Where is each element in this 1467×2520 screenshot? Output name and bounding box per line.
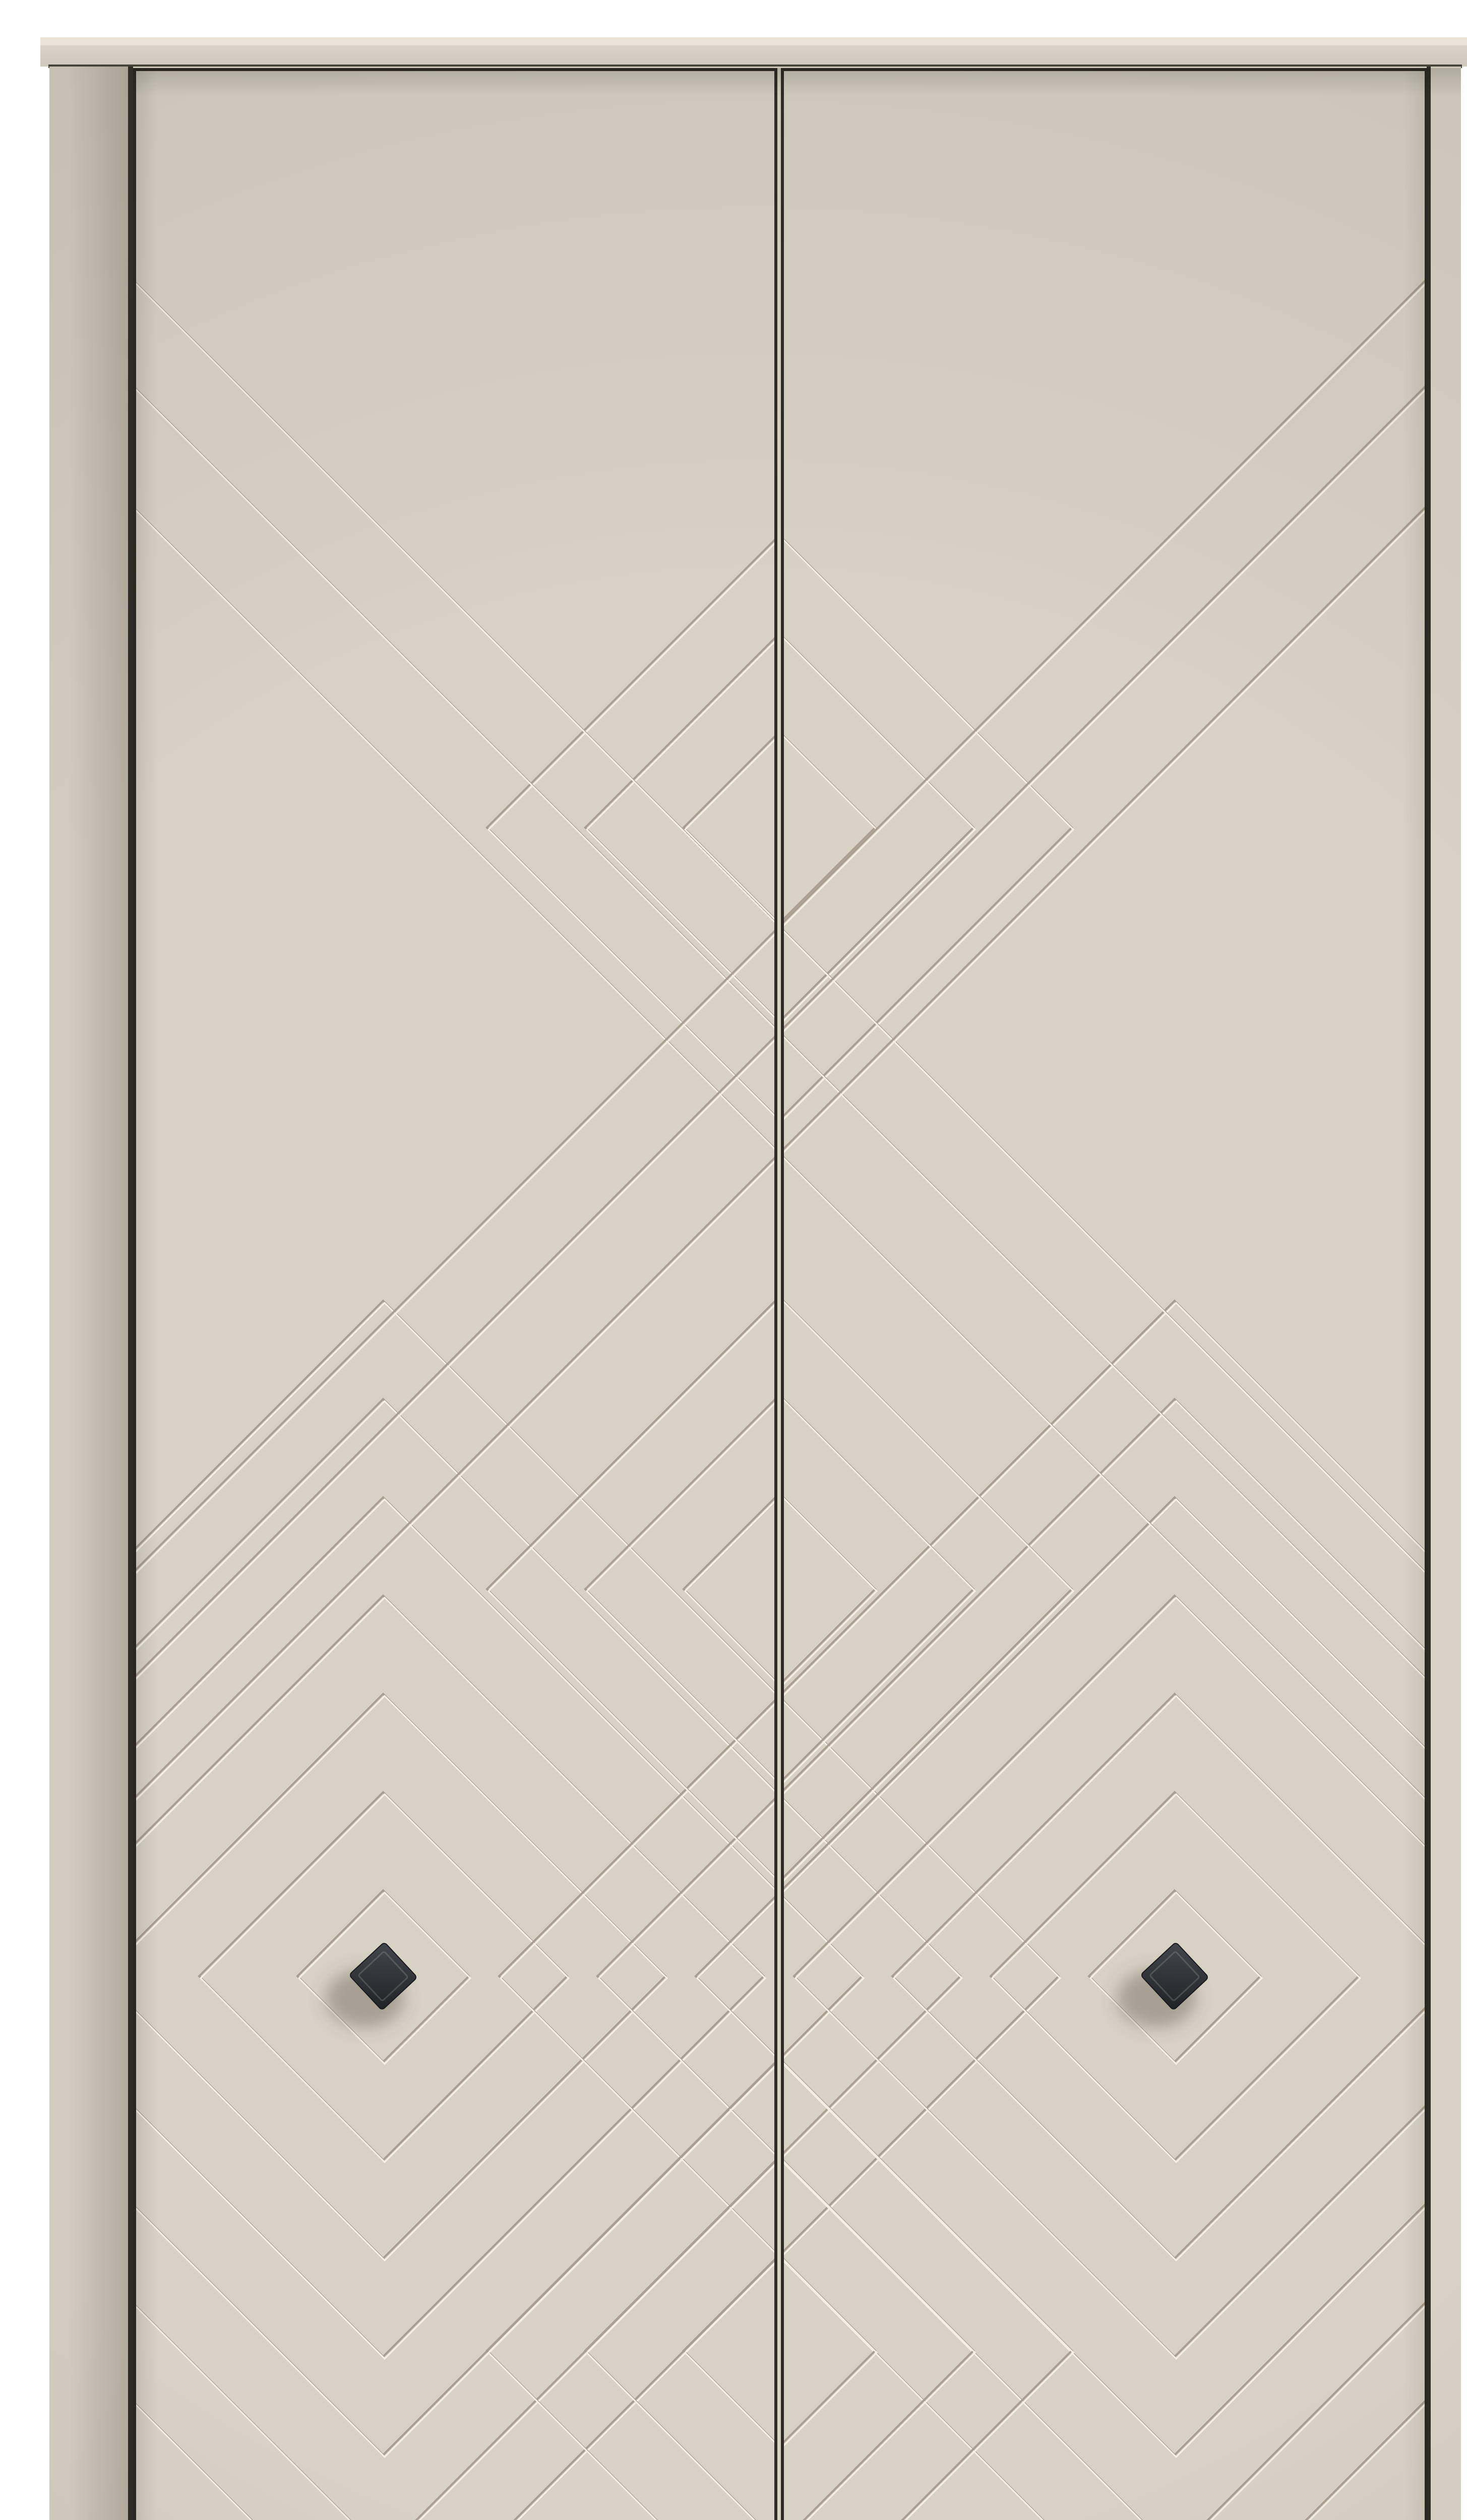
wardrobe-scene	[20, 8, 1467, 2520]
vignette-overlay	[49, 67, 1461, 2520]
shading-overlays	[49, 67, 1461, 2520]
top-panel-top-surface	[40, 37, 1467, 45]
wardrobe-product-photo	[20, 8, 1467, 2520]
